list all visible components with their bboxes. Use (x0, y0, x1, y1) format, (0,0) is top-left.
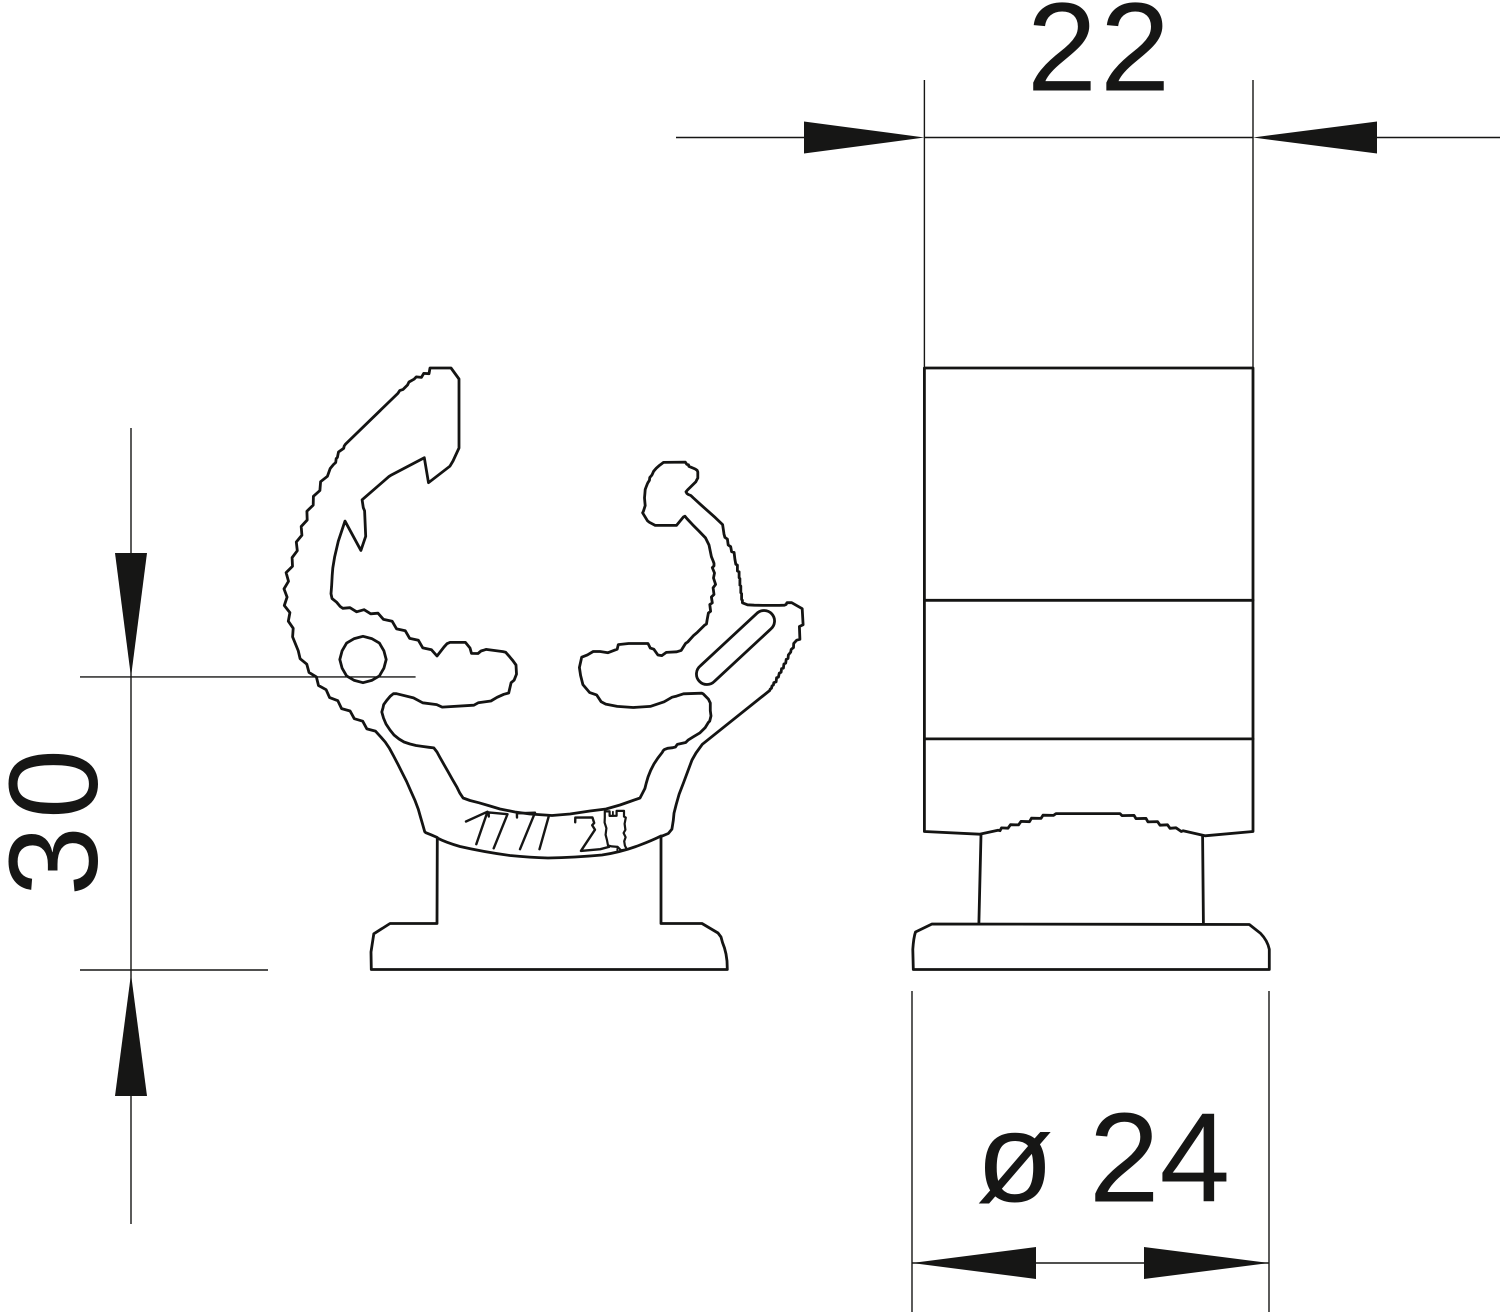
svg-text:30: 30 (0, 742, 124, 896)
svg-text:ø 24: ø 24 (976, 1087, 1230, 1229)
svg-text:22: 22 (1027, 0, 1173, 118)
